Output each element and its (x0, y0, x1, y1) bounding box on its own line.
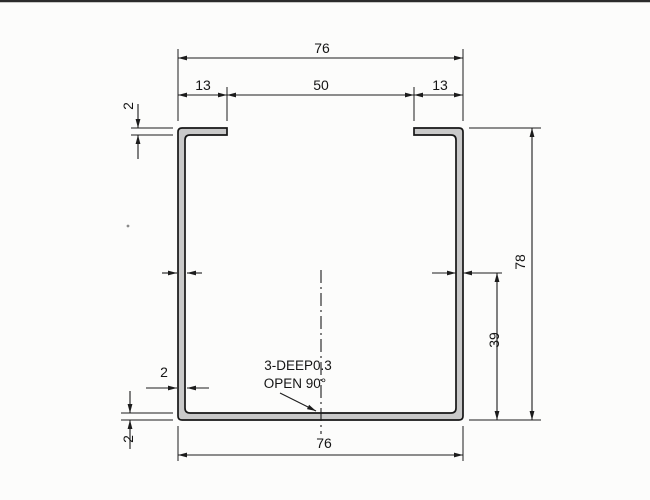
dim-top-flange-thickness: 2 (120, 102, 173, 159)
dim-label-left-wall-thickness: 2 (160, 364, 168, 380)
technical-drawing: 76 13 50 13 2 2 2 (0, 0, 650, 500)
dim-label-top-right-lip: 13 (432, 77, 448, 93)
dim-label-overall-height: 78 (512, 254, 528, 270)
dim-height: 78 (469, 128, 541, 420)
dim-label-bottom-width: 76 (316, 435, 332, 451)
leader-line (280, 393, 316, 411)
dim-top-segments: 13 50 13 (178, 77, 463, 121)
note-callout: 3-DEEP0.3 OPEN 90° (264, 358, 332, 411)
note-line-2: OPEN 90° (264, 376, 326, 391)
dim-label-top-width: 76 (314, 40, 330, 56)
dim-label-top-opening: 50 (313, 77, 329, 93)
scan-dot (127, 225, 130, 228)
note-line-1: 3-DEEP0.3 (264, 358, 332, 373)
dim-label-top-left-lip: 13 (195, 77, 211, 93)
dim-bottom-flange-thickness: 2 (120, 391, 173, 449)
dim-label-bottom-flange-thickness: 2 (120, 435, 136, 443)
dim-half-height: 39 (432, 273, 502, 420)
dim-label-half-height: 39 (486, 332, 502, 348)
dim-label-top-flange-thickness: 2 (120, 102, 136, 110)
